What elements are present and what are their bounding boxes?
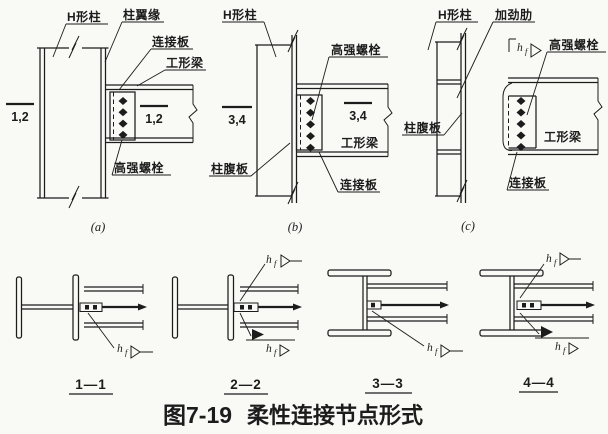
weld-arrow-icon [441,345,450,357]
section-mark-text: 3,4 [349,109,366,123]
panel-b-column [255,30,298,204]
weld-arrow-icon [560,253,569,265]
panel-a: 1,2 1,2 H形柱 柱翼缘 连接板 工形梁 高强螺 [6,7,206,234]
label-bolts: 高强螺栓 [114,160,164,175]
section-3-3-column [328,270,391,336]
bolt-plan-icon [85,305,89,310]
panel-b-callout-connection-plate: 连接板 [319,152,380,192]
panel-c-bolts [517,97,526,151]
label-h-column: H形柱 [223,7,257,22]
figure-caption-title: 柔性连接节点形式 [247,403,423,428]
panel-c-stiffeners [437,80,461,154]
weld-size-label: h [517,42,523,54]
break-mark-icon [69,36,79,58]
section-2-2-tag: 2—2 [230,377,262,392]
label-connection-plate: 连接板 [152,34,190,49]
high-strength-bolt-icon [306,97,315,105]
weld-size-label: h [427,342,433,354]
panel-c-callout-connection-plate: 连接板 [507,152,549,190]
weld-size-subscript: f [274,347,278,357]
panel-b-tag: (b) [288,220,303,234]
section-2-2: h f h f 2—2 [173,254,303,394]
weld-size-label: h [555,341,561,353]
label-column-web: 柱腹板 [211,161,249,176]
web-cut-arrow-icon [586,302,595,309]
panel-a-section-mark-right: 1,2 [140,106,168,126]
section-2-2-column [173,275,234,340]
section-3-3-tag: 3—3 [372,376,404,391]
plate-plan [80,303,102,312]
label-beam: 工形梁 [341,135,379,150]
bolt-plan-icon [240,305,244,310]
break-mark-icon [384,84,392,157]
label-bolts: 高强螺栓 [549,37,599,52]
panel-a-bolts [119,97,128,139]
web-cut-arrow-icon [138,304,147,311]
weld-size-subscript: f [125,347,129,357]
section-2-2-beam-plan [234,284,302,330]
panel-c-tag: (c) [461,219,475,233]
break-mark-icon [69,186,79,208]
label-h-column: H形柱 [67,9,101,24]
web-cut-arrow-icon [440,302,449,309]
label-connection-plate: 连接板 [340,177,378,192]
panel-c-callout-column: H形柱 [428,7,478,50]
break-mark-icon [189,85,197,143]
weld-size-subscript: f [563,345,567,355]
field-weld-flag-icon [252,329,264,340]
section-4-4-beam-plan [514,281,595,324]
weld-size-label: h [266,254,272,266]
weld-arrow-icon [280,345,289,356]
section-4-4: h f h f 4—4 [480,253,595,392]
panel-c-callout-column-web: 柱腹板 [402,113,462,135]
high-strength-bolt-icon [119,97,128,105]
figure-caption-number: 图7-19 [163,402,232,428]
section-1-1-column [17,275,79,340]
weld-arrow-icon [531,44,541,57]
panel-a-column [37,36,109,208]
panel-a-callout-column: H形柱 [53,9,108,57]
panel-a-callout-beam: 工形梁 [137,55,206,86]
high-strength-bolt-icon [517,132,526,140]
weld-size-label: h [266,343,272,355]
panel-a-callout-bolts: 高强螺栓 [112,140,171,175]
label-beam: 工形梁 [544,129,582,144]
section-mark-text: 1,2 [11,110,28,124]
panel-a-section-mark-left: 1,2 [6,104,34,124]
high-strength-bolt-icon [306,120,315,128]
panel-a-tag: (a) [91,220,106,234]
bolt-plan-icon [522,303,526,308]
label-beam: 工形梁 [166,55,204,70]
bolt-plan-icon [93,305,97,310]
label-bolts: 高强螺栓 [331,42,381,57]
bolt-plan-icon [371,303,375,308]
weld-size-label: h [117,343,123,355]
section-mark-text: 3,4 [228,113,245,127]
weld-arrow-icon [131,346,140,358]
weld-arrow-icon [281,255,290,267]
plate-plan [517,301,541,310]
high-strength-bolt-icon [517,120,526,128]
plate-plan [234,303,258,312]
beam-cope [503,83,512,96]
label-column-web: 柱腹板 [404,120,442,135]
weld-size-subscript: f [274,258,278,268]
section-1-1: h f 1—1 [17,275,154,394]
figure-page: 1,2 1,2 H形柱 柱翼缘 连接板 工形梁 高强螺 [0,0,608,434]
weld-arrow-icon [569,343,578,354]
section-1-1-tag: 1—1 [75,377,107,392]
break-mark-icon [594,78,602,155]
high-strength-bolt-icon [119,120,128,128]
section-2-2-weld-mark-bottom: h f [240,313,295,357]
panel-b-section-mark-right: 3,4 [344,103,372,123]
label-connection-plate: 连接板 [509,175,547,190]
panel-b-callout-column: H形柱 [222,7,276,57]
section-3-3-beam-plan [367,281,449,324]
bolt-plan-icon [530,303,534,308]
panel-c-column [435,28,467,203]
high-strength-bolt-icon [517,109,526,117]
high-strength-bolt-icon [517,97,526,105]
section-4-4-weld-mark-bottom: h f [520,313,589,355]
section-3-3-weld-mark: h f [372,311,463,357]
panel-b-bolts [306,97,315,152]
weld-size-subscript: f [435,346,439,356]
section-2-2-weld-mark-top: h f [240,254,302,301]
figure-7-19-diagram: 1,2 1,2 H形柱 柱翼缘 连接板 工形梁 高强螺 [0,0,608,434]
weld-size-label: h [546,253,552,265]
label-column-flange: 柱翼缘 [123,7,161,22]
panel-b-section-mark-left: 3,4 [222,107,252,127]
panel-b: 3,4 3,4 H形柱 高强螺栓 柱腹板 工形梁 连接板 (b) [209,7,392,234]
high-strength-bolt-icon [306,132,315,140]
section-4-4-tag: 4—4 [523,375,555,390]
section-mark-text: 1,2 [145,112,162,126]
label-h-column: H形柱 [438,7,472,22]
panel-c-weld-symbol: h f [509,39,541,57]
label-stiffener: 加劲肋 [494,7,533,22]
weld-size-subscript: f [554,257,558,267]
web-cut-arrow-icon [293,304,302,311]
section-1-1-beam-plan [80,284,147,330]
weld-size-subscript: f [525,46,529,56]
figure-caption: 图7-19 柔性连接节点形式 [163,402,423,428]
section-1-1-weld-mark: h f [88,313,153,358]
field-weld-flag-icon [541,326,553,338]
beam-cope [503,141,512,151]
bolt-plan-icon [248,305,252,310]
high-strength-bolt-icon [119,108,128,116]
panel-b-callout-column-web: 柱腹板 [209,143,290,176]
panel-c: h f H形柱 加劲肋 高强螺栓 柱腹板 工形梁 连接板 [402,7,606,233]
section-3-3: h f 3—3 [328,270,463,393]
